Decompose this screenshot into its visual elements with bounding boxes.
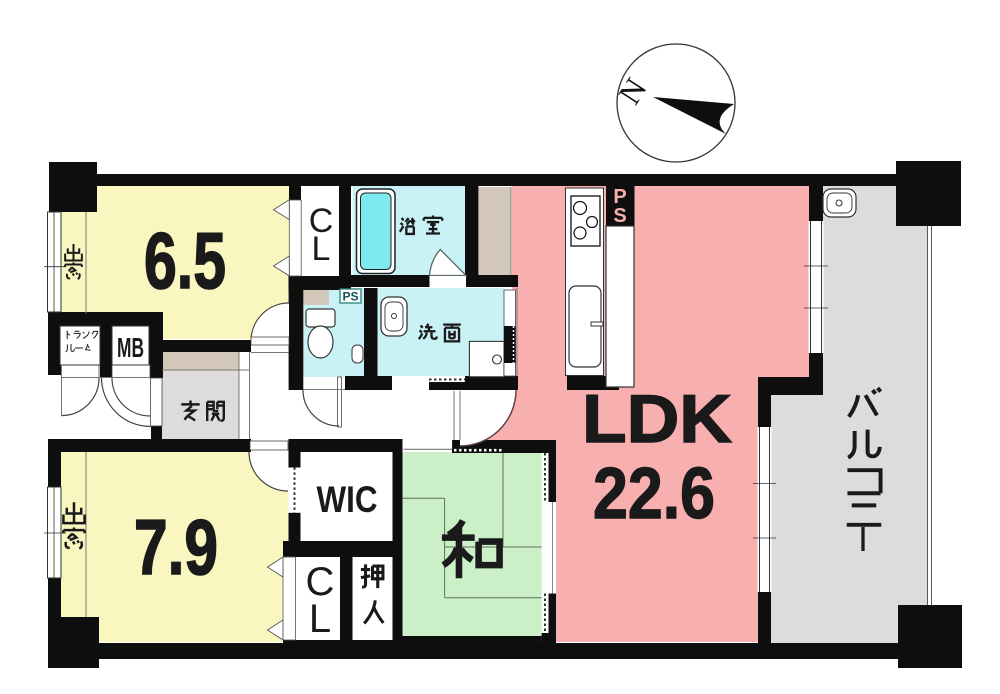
svg-text:L: L [309,597,331,641]
svg-text:7.9: 7.9 [134,503,218,591]
svg-text:6.5: 6.5 [144,216,226,305]
svg-text:22.6: 22.6 [593,454,715,534]
svg-text:WIC: WIC [317,479,378,520]
svg-text:PS: PS [343,290,359,304]
svg-text:MB: MB [117,332,144,363]
svg-text:S: S [613,205,626,227]
svg-text:L: L [312,230,331,268]
svg-text:LDK: LDK [582,381,732,457]
